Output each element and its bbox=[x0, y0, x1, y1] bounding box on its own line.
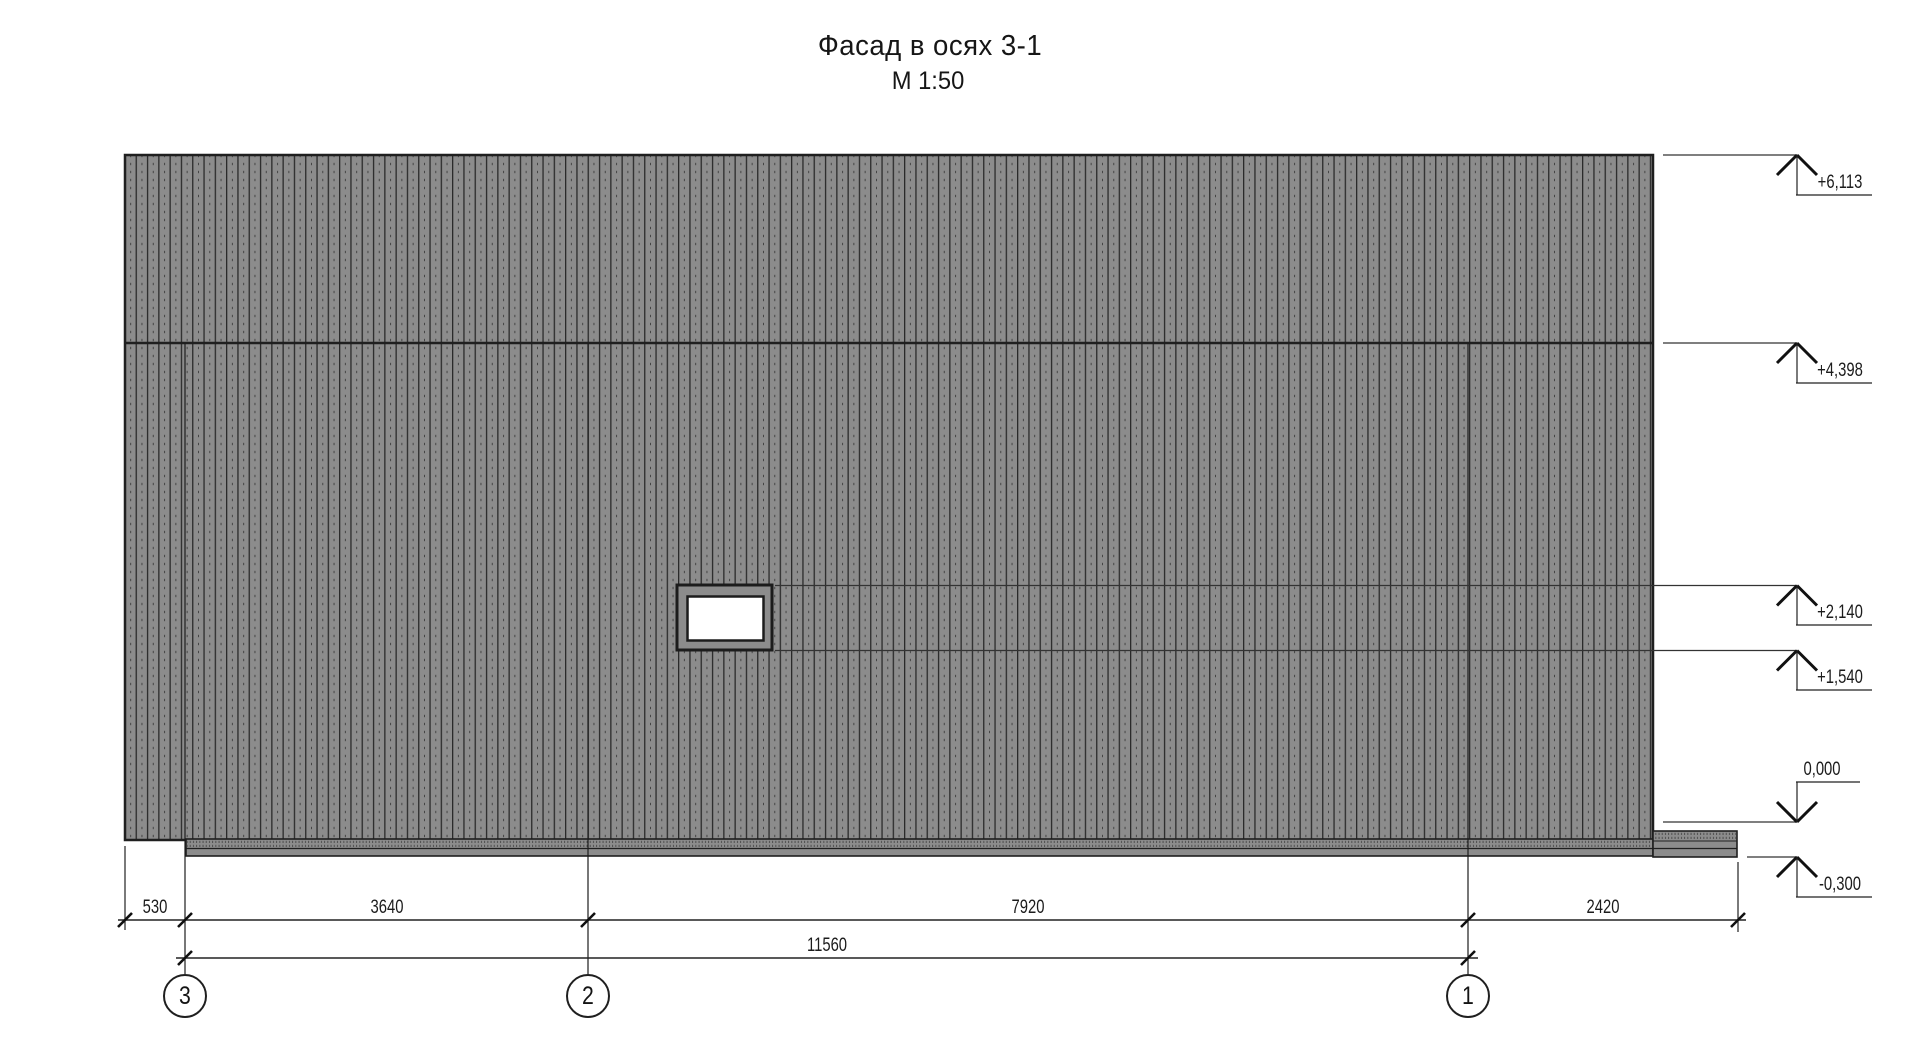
drawing-title: Фасад в осях 3-1 bbox=[818, 30, 1042, 63]
elevation-label: +6,113 bbox=[1818, 172, 1863, 194]
elevation-arrow-icons bbox=[1777, 155, 1872, 897]
elevation-label: +4,398 bbox=[1817, 360, 1863, 382]
facade-drawing-sheet: Фасад в осях 3-1 М 1:50 +6,113 +4,398 +2… bbox=[0, 0, 1920, 1054]
dimension-tick-icons bbox=[118, 913, 1745, 965]
drawing-scale: М 1:50 bbox=[892, 67, 965, 96]
axis-bubble-2: 2 bbox=[566, 974, 610, 1018]
facade-wall bbox=[125, 155, 1653, 840]
dimension-lines bbox=[118, 846, 1746, 958]
elevation-label: -0,300 bbox=[1819, 874, 1861, 896]
dimension-label: 3640 bbox=[371, 897, 404, 919]
facade-elevation-drawing bbox=[0, 0, 1920, 1054]
dimension-label: 7920 bbox=[1012, 897, 1045, 919]
axis-number: 3 bbox=[179, 982, 191, 1011]
window bbox=[677, 585, 772, 650]
elevation-label: +2,140 bbox=[1817, 602, 1863, 624]
axis-number: 2 bbox=[582, 982, 594, 1011]
dimension-label: 2420 bbox=[1587, 897, 1620, 919]
elevation-label: 0,000 bbox=[1803, 759, 1840, 781]
axis-bubble-1: 1 bbox=[1446, 974, 1490, 1018]
dimension-total-label: 11560 bbox=[807, 935, 847, 957]
elevation-arrow-icon bbox=[1777, 782, 1860, 822]
dimension-label: 530 bbox=[143, 897, 168, 919]
elevation-label: +1,540 bbox=[1817, 667, 1863, 689]
axis-bubble-3: 3 bbox=[163, 974, 207, 1018]
axis-number: 1 bbox=[1462, 982, 1474, 1011]
